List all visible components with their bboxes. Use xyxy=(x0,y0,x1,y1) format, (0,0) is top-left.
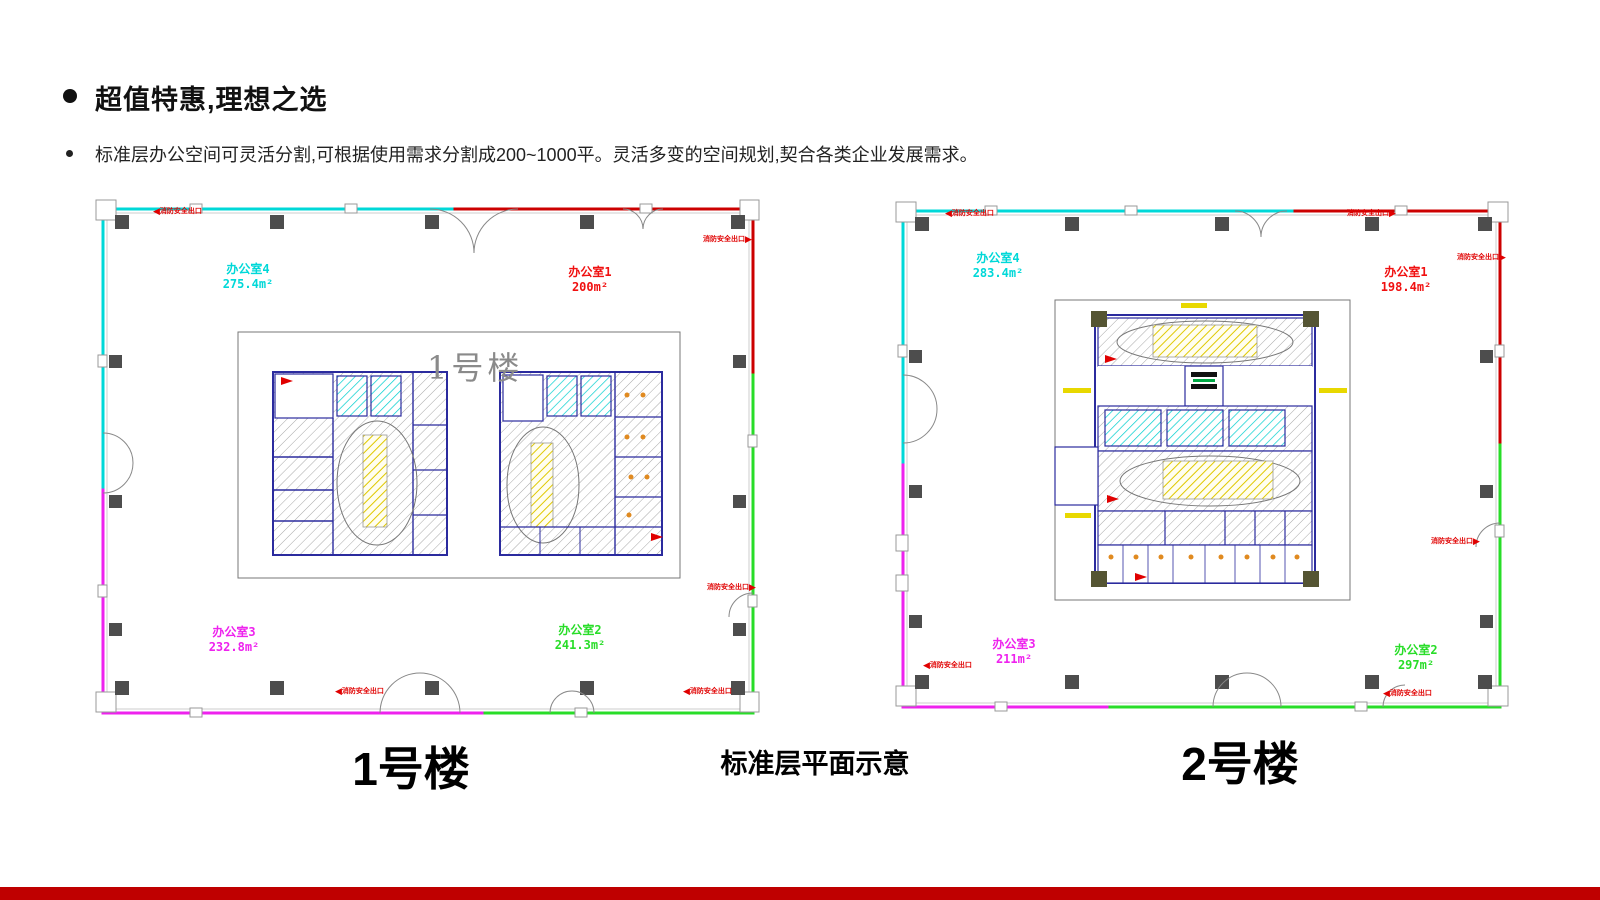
fire-exit-arrow-icon: ◀ xyxy=(683,686,690,696)
page-title: 超值特惠,理想之选 xyxy=(95,78,328,117)
room-label-plan2-office1: 办公室1 198.4m² xyxy=(1341,265,1471,295)
floorplan-building-1: 1号楼 办公室4 275.4m² 办公室1 200m² 办公室3 232.8m²… xyxy=(95,195,760,720)
caption-standard-floor: 标准层平面示意 xyxy=(655,742,975,781)
room-label-plan1-office3: 办公室3 232.8m² xyxy=(169,625,299,655)
fire-exit-label: 消防安全出口▶ xyxy=(1431,537,1480,546)
room-label-plan1-office2: 办公室2 241.3m² xyxy=(515,623,645,653)
fire-exit-arrow-icon: ◀ xyxy=(335,686,342,696)
fire-exit-arrow-icon: ▶ xyxy=(749,582,756,592)
plan2-core xyxy=(1055,303,1347,587)
room-label-plan2-office4: 办公室4 283.4m² xyxy=(933,251,1063,281)
plan1-watermark: 1号楼 xyxy=(427,343,523,389)
room-label-plan1-office1: 办公室1 200m² xyxy=(525,265,655,295)
fire-exit-label: ◀消防安全出口 xyxy=(1383,689,1432,698)
title-bullet-dot xyxy=(63,89,77,103)
fire-exit-label: ◀消防安全出口 xyxy=(335,687,384,696)
fire-exit-label: 消防安全出口▶ xyxy=(1347,209,1396,218)
fire-exit-label: ◀消防安全出口 xyxy=(153,207,202,216)
fire-exit-arrow-icon: ▶ xyxy=(1389,208,1396,218)
fire-exit-label: ◀消防安全出口 xyxy=(945,209,994,218)
subtitle-bullet-dot xyxy=(66,150,73,157)
fire-exit-arrow-icon: ▶ xyxy=(745,234,752,244)
plan1-right-core xyxy=(500,372,663,555)
fire-exit-arrow-icon: ◀ xyxy=(945,208,952,218)
fire-exit-label: ◀消防安全出口 xyxy=(683,687,732,696)
fire-exit-arrow-icon: ◀ xyxy=(153,206,160,216)
caption-building-2: 2号楼 xyxy=(1090,728,1390,794)
fire-exit-label: 消防安全出口▶ xyxy=(703,235,752,244)
bottom-accent-bar xyxy=(0,887,1600,900)
fire-exit-arrow-icon: ◀ xyxy=(923,660,930,670)
floorplan-building-2: 办公室4 283.4m² 办公室1 198.4m² 办公室3 211m² 办公室… xyxy=(895,195,1510,715)
subtitle-text: 标准层办公空间可灵活分割,可根据使用需求分割成200~1000平。灵活多变的空间… xyxy=(95,141,978,167)
room-label-plan2-office2: 办公室2 297m² xyxy=(1351,643,1481,673)
fire-exit-label: 消防安全出口▶ xyxy=(707,583,756,592)
fire-exit-arrow-icon: ▶ xyxy=(1499,252,1506,262)
plan1-left-core xyxy=(273,372,447,555)
fire-exit-arrow-icon: ▶ xyxy=(1473,536,1480,546)
fire-exit-label: 消防安全出口▶ xyxy=(1457,253,1506,262)
caption-building-1: 1号楼 xyxy=(261,733,561,799)
room-label-plan1-office4: 办公室4 275.4m² xyxy=(183,262,313,292)
fire-exit-arrow-icon: ◀ xyxy=(1383,688,1390,698)
fire-exit-label: ◀消防安全出口 xyxy=(923,661,972,670)
